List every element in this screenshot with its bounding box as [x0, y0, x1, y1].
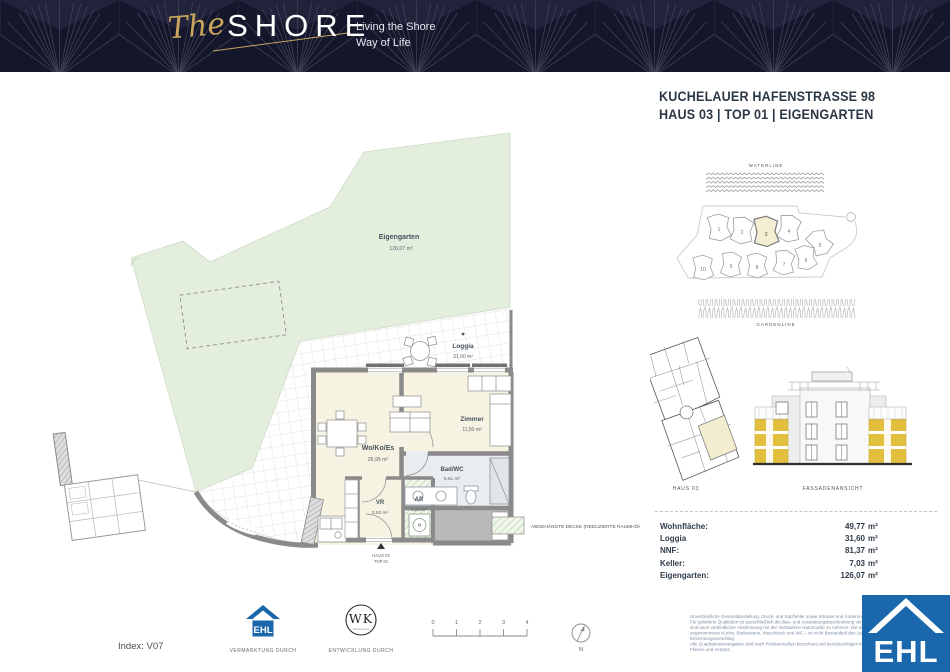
entrance-label-2: TOP 01 [374, 559, 389, 564]
header-banner: The SHORE Living the Shore Way of Life [0, 0, 950, 72]
garden-label: Eigengarten [379, 234, 419, 241]
bath-label: Bad/WC [441, 467, 465, 473]
main-floor-plan: Eigengarten 126,07 m² Loggia 31,60 m² Wo… [50, 120, 640, 600]
brand-logo: The SHORE [168, 8, 372, 64]
row-value: 126,07 [815, 571, 865, 580]
loggia-label: Loggia [452, 343, 474, 350]
building-3-number: 3 [764, 232, 767, 238]
scale-0: 0 [431, 620, 434, 626]
building-2-number: 2 [741, 230, 744, 236]
ehl-large-text: EHL [874, 634, 939, 669]
roof-railing [788, 367, 880, 390]
brand-tagline: Living the Shore Way of Life [356, 19, 436, 51]
light-point-icon [462, 333, 465, 336]
wk-sub-text: Development [353, 627, 370, 631]
ehl-large-logo-icon: EHL [862, 595, 950, 672]
legal-line: Einrichtungsvorschlag. [690, 636, 735, 641]
footer: Index: V07 EHL VERMARKTUNG DURCH WK Deve… [100, 595, 950, 672]
entrance-label-1: HAUS 03 [372, 553, 390, 558]
scale-4: 4 [525, 620, 528, 626]
artdeco-pattern-icon [0, 0, 950, 72]
storage-label: AR [415, 497, 424, 503]
gardenline-label: GARDENLINE [756, 322, 795, 327]
garden-area-label: 126,07 m² [389, 246, 413, 252]
vermarktung-caption: VERMARKTUNG DURCH [230, 648, 297, 654]
table-row: Loggia 31,60 m² [660, 532, 884, 544]
building-9-number: 9 [730, 264, 733, 270]
scale-1: 1 [455, 620, 458, 626]
wk-text: WK [349, 611, 373, 626]
table-row: Eigengarten: 126,07 m² [660, 570, 884, 582]
legend-swatch-icon [492, 517, 524, 534]
building-10-number: 10 [700, 267, 706, 273]
north-label: N [579, 647, 583, 653]
scale-bar: 0 1 2 3 4 [431, 620, 528, 636]
loggia-area-label: 31,60 m² [453, 354, 473, 360]
row-label: Loggia [660, 534, 815, 543]
facade-caption: FASSADENANSICHT [803, 486, 864, 492]
row-label: Wohnfläche: [660, 522, 815, 531]
brand-script-text: The [167, 7, 227, 47]
haus03-caption: HAUS 03 [673, 486, 699, 492]
bedroom-area-label: 11,50 m² [462, 427, 482, 433]
site-overview: WATERLINE 1 2 [650, 145, 945, 505]
table-divider [655, 511, 937, 512]
table-row: Keller: 7,03 m² [660, 557, 884, 569]
row-label: NNF: [660, 546, 815, 555]
wk-logo-icon: WK Development [346, 605, 376, 635]
building-6-number: 6 [805, 258, 808, 264]
row-value: 49,77 [815, 522, 865, 531]
building-8-number: 8 [756, 265, 759, 271]
row-unit: m² [868, 559, 884, 568]
waterline-waves-icon [706, 171, 824, 193]
index-label: Index: V07 [118, 641, 163, 652]
row-unit: m² [868, 571, 884, 580]
row-value: 7,03 [815, 559, 865, 568]
legal-line: Fliesen und Verputz. [690, 647, 731, 652]
wardrobe-icon [345, 480, 358, 538]
tagline-line2: Way of Life [356, 35, 436, 51]
floorplan-sheet: The SHORE Living the Shore Way of Life K… [0, 0, 950, 672]
storage-area-label: 1,23 m² [411, 507, 427, 512]
unit-title: KUCHELAUER HAFENSTRASSE 98 HAUS 03 | TOP… [659, 88, 875, 123]
row-value: 31,60 [815, 534, 865, 543]
building-7-number: 7 [783, 262, 786, 268]
living-label: Wo/Ko/Es [362, 445, 395, 452]
gardenline-grass-icon [698, 299, 856, 318]
facade-elevation [753, 367, 912, 464]
living-area-label: 26,95 m² [368, 457, 389, 463]
bath-area-label: 5,61 m² [444, 476, 461, 482]
haus03-mini-plan [650, 335, 741, 483]
tagline-line1: Living the Shore [356, 19, 436, 35]
table-row: NNF: 81,37 m² [660, 545, 884, 557]
entwicklung-caption: ENTWICKLUNG DURCH [329, 648, 394, 654]
adjacent-structure [53, 423, 145, 541]
building-4-number: 4 [788, 229, 791, 235]
scale-2: 2 [478, 620, 481, 626]
ehl-small-text: EHL [254, 625, 273, 636]
brand-main-text: SHORE [227, 8, 372, 44]
roundabout-icon [847, 213, 856, 222]
row-label: Eigengarten: [660, 571, 815, 580]
bedroom-label: Zimmer [460, 416, 484, 423]
waterline-label: WATERLINE [749, 163, 784, 168]
building-1-number: 1 [718, 227, 721, 233]
table-row: Wohnfläche: 49,77 m² [660, 520, 884, 532]
ehl-small-logo-icon: EHL [246, 605, 280, 637]
unit-title-line1: KUCHELAUER HAFENSTRASSE 98 [659, 88, 875, 106]
kitchen-counter-icon [318, 516, 346, 542]
row-unit: m² [868, 522, 884, 531]
building-5-number: 5 [819, 243, 822, 249]
vestibule-area-label: 3,93 m² [372, 510, 389, 516]
scale-3: 3 [502, 620, 505, 626]
washing-machine-icon [409, 514, 430, 536]
row-value: 81,37 [815, 546, 865, 555]
unit-title-line2: HAUS 03 | TOP 01 | EIGENGARTEN [659, 106, 875, 124]
legend-label: ABGEHÄNGTE DECKE (REDUZIERTE RAUMHÖHE) [531, 523, 640, 530]
row-unit: m² [868, 546, 884, 555]
area-table: Wohnfläche: 49,77 m² Loggia 31,60 m² NNF… [660, 520, 884, 582]
row-unit: m² [868, 534, 884, 543]
site-buildings: 1 2 3 4 5 6 7 8 9 10 [692, 213, 836, 281]
row-label: Keller: [660, 559, 815, 568]
vestibule-label: VR [376, 500, 385, 506]
north-arrow-icon: N [572, 624, 590, 653]
